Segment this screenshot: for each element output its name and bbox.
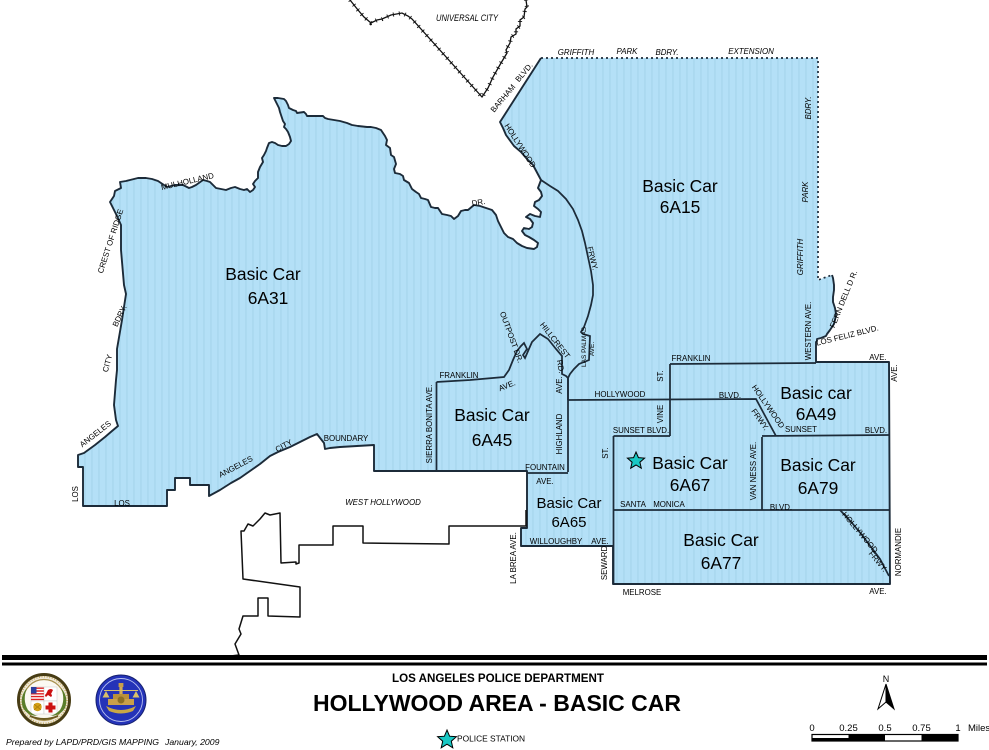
svg-text:AVE.: AVE.	[869, 587, 886, 596]
svg-text:BDRY.: BDRY.	[655, 48, 678, 57]
svg-text:FRANKLIN: FRANKLIN	[671, 354, 710, 363]
svg-text:AVE.: AVE.	[591, 537, 608, 546]
svg-text:EXTENSION: EXTENSION	[728, 47, 774, 56]
svg-text:MONICA: MONICA	[653, 500, 685, 509]
svg-text:GRIFFITH: GRIFFITH	[796, 239, 805, 276]
svg-text:N: N	[883, 674, 890, 684]
svg-text:6A79: 6A79	[798, 478, 839, 498]
svg-text:6A49: 6A49	[796, 404, 837, 424]
svg-text:BLVD.: BLVD.	[719, 391, 741, 400]
svg-text:SUNSET: SUNSET	[785, 425, 817, 434]
svg-text:CITY: CITY	[101, 353, 115, 373]
svg-text:GRIFFITH: GRIFFITH	[558, 48, 595, 57]
svg-text:AVE.: AVE.	[555, 376, 564, 393]
svg-text:PARK: PARK	[617, 47, 639, 56]
svg-text:MELROSE: MELROSE	[623, 588, 662, 597]
svg-text:Basic Car: Basic Car	[642, 176, 718, 196]
svg-text:6A67: 6A67	[670, 475, 711, 495]
svg-text:ST.: ST.	[656, 370, 665, 381]
svg-text:SUNSET BLVD.: SUNSET BLVD.	[613, 426, 669, 435]
svg-text:AVE.: AVE.	[890, 364, 899, 381]
svg-text:Basic car: Basic car	[780, 383, 852, 403]
svg-text:AVE.: AVE.	[536, 477, 553, 486]
svg-text:0.25: 0.25	[839, 723, 858, 734]
svg-text:VINE: VINE	[656, 405, 665, 423]
svg-text:Basic Car: Basic Car	[536, 495, 601, 512]
svg-text:LOS: LOS	[71, 486, 80, 502]
svg-text:0.5: 0.5	[878, 723, 891, 734]
svg-text:BLVD.: BLVD.	[770, 503, 792, 512]
svg-text:Basic Car: Basic Car	[652, 453, 728, 473]
svg-text:LAS PALMAS: LAS PALMAS	[581, 326, 588, 367]
svg-text:Prepared by LAPD/PRD/GIS MAPPI: Prepared by LAPD/PRD/GIS MAPPING	[6, 737, 159, 747]
svg-text:0: 0	[809, 723, 814, 734]
svg-text:Miles: Miles	[968, 723, 989, 734]
svg-text:LOS: LOS	[114, 499, 130, 508]
svg-text:SIERRA BONITA AVE.: SIERRA BONITA AVE.	[425, 385, 434, 464]
svg-text:6A31: 6A31	[248, 288, 289, 308]
svg-text:POLICE STATION: POLICE STATION	[457, 734, 525, 744]
svg-text:FRANKLIN: FRANKLIN	[439, 371, 478, 380]
svg-text:Basic Car: Basic Car	[683, 530, 759, 550]
svg-text:LA BREA AVE.: LA BREA AVE.	[509, 532, 518, 584]
svg-text:VAN NESS AVE.: VAN NESS AVE.	[749, 442, 758, 500]
svg-text:Basic Car: Basic Car	[780, 455, 856, 475]
svg-text:Basic Car: Basic Car	[454, 405, 530, 425]
svg-text:0.75: 0.75	[912, 723, 931, 734]
svg-text:6A77: 6A77	[701, 553, 742, 573]
svg-text:PARK: PARK	[801, 181, 810, 203]
svg-text:SEWARD: SEWARD	[600, 546, 609, 581]
svg-text:BOUNDARY: BOUNDARY	[324, 434, 369, 443]
svg-text:HOLLYWOOD: HOLLYWOOD	[595, 390, 646, 399]
svg-text:HOLLYWOOD AREA - BASIC CAR: HOLLYWOOD AREA - BASIC CAR	[313, 690, 681, 716]
svg-text:AVE.: AVE.	[589, 342, 596, 357]
svg-text:LOS ANGELES POLICE DEPARTMENT: LOS ANGELES POLICE DEPARTMENT	[392, 672, 604, 685]
svg-text:WILLOUGHBY: WILLOUGHBY	[530, 537, 583, 546]
svg-text:WEST HOLLYWOOD: WEST HOLLYWOOD	[345, 498, 421, 507]
svg-text:6A45: 6A45	[472, 430, 513, 450]
svg-text:BDRY.: BDRY.	[804, 96, 813, 119]
svg-text:AVE.: AVE.	[869, 353, 886, 362]
svg-text:BLVD.: BLVD.	[865, 426, 887, 435]
svg-text:6A65: 6A65	[551, 514, 586, 531]
svg-text:1: 1	[955, 723, 960, 734]
svg-text:NORMANDIE: NORMANDIE	[894, 528, 903, 576]
svg-text:January, 2009: January, 2009	[164, 737, 220, 747]
svg-text:WESTERN AVE.: WESTERN AVE.	[804, 302, 813, 361]
svg-text:FOUNTAIN: FOUNTAIN	[525, 463, 565, 472]
svg-text:ST.: ST.	[601, 447, 610, 458]
svg-text:SANTA: SANTA	[620, 500, 646, 509]
svg-text:HIGHLAND: HIGHLAND	[555, 413, 564, 454]
svg-text:UNIVERSAL CITY: UNIVERSAL CITY	[436, 13, 499, 24]
svg-text:6A15: 6A15	[660, 197, 701, 217]
svg-text:Basic Car: Basic Car	[225, 264, 301, 284]
